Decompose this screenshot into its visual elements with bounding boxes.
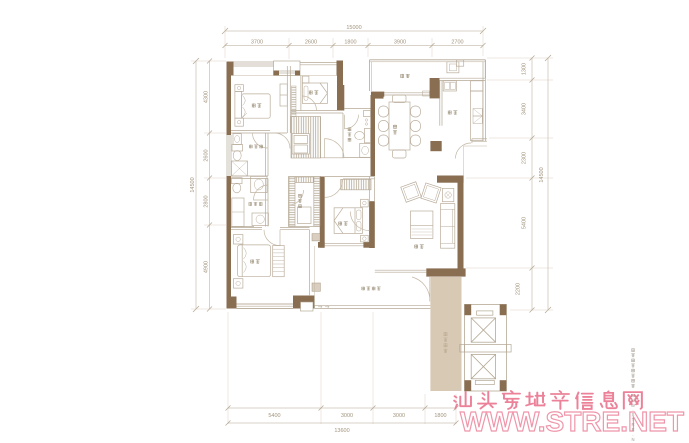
svg-text:13600: 13600 [334, 428, 349, 434]
svg-text:5400: 5400 [268, 413, 280, 419]
svg-text:3700: 3700 [251, 40, 263, 46]
svg-text:2300: 2300 [522, 152, 528, 164]
svg-text:2800: 2800 [204, 195, 210, 207]
svg-text:3900: 3900 [394, 40, 406, 46]
svg-text:2700: 2700 [451, 40, 463, 46]
svg-text:2600: 2600 [204, 149, 210, 161]
svg-text:15000: 15000 [346, 25, 361, 31]
svg-text:1300: 1300 [522, 63, 528, 75]
svg-text:3000: 3000 [393, 413, 405, 419]
svg-text:2600: 2600 [305, 40, 317, 46]
svg-text:4300: 4300 [204, 91, 210, 103]
svg-text:4900: 4900 [204, 261, 210, 273]
svg-text:WWW.STRE.NET: WWW.STRE.NET [460, 406, 684, 437]
svg-text:1800: 1800 [344, 40, 356, 46]
svg-text:1800: 1800 [434, 413, 446, 419]
svg-text:14500: 14500 [539, 167, 545, 182]
svg-text:3400: 3400 [522, 103, 528, 115]
svg-text:3000: 3000 [341, 413, 353, 419]
svg-text:5400: 5400 [522, 217, 528, 229]
svg-text:14500: 14500 [190, 177, 196, 192]
svg-text:2200: 2200 [516, 283, 522, 295]
svg-text:N: N [631, 437, 634, 442]
